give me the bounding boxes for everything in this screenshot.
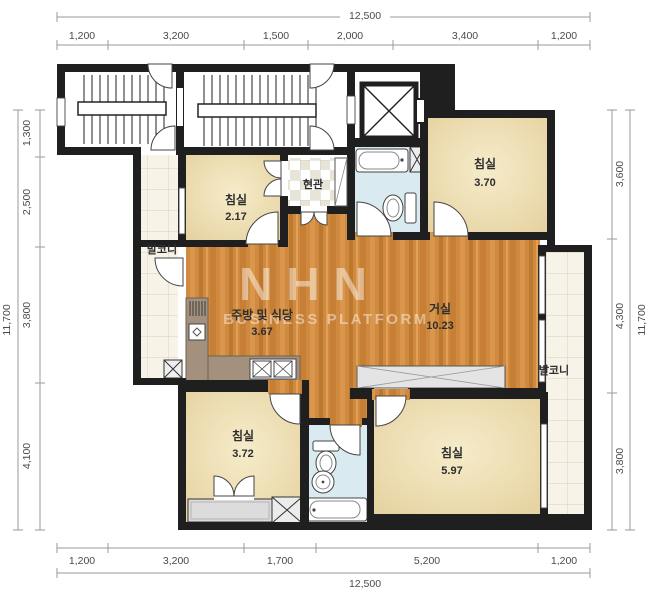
window-bedroom-top-left	[179, 188, 185, 234]
dim-top-seg-2: 1,500	[263, 30, 289, 42]
dim-bottom-seg-4: 1,200	[551, 555, 577, 567]
dim-bottom-total: 12,500	[349, 578, 381, 590]
dim-left-seg-0: 1,300	[21, 120, 33, 146]
living-room-label: 거실	[429, 301, 451, 316]
kitchen-sink	[189, 324, 205, 340]
elevator	[362, 84, 425, 138]
window-stairwell	[57, 98, 65, 126]
dimensions-top-text: 12,500 1,200 3,200 1,500 2,000 3,400 1,2…	[69, 10, 577, 42]
balcony-right-label: 발코니	[539, 363, 569, 377]
balcony-right-floor	[546, 252, 584, 514]
dim-left-seg-3: 4,100	[21, 443, 33, 469]
watermark-brand: NHN	[239, 258, 381, 310]
bedroom-top-left-area: 2.17	[225, 211, 246, 223]
storage-cabinet	[188, 499, 272, 522]
bedroom-top-left-label: 침실	[225, 192, 247, 207]
dimensions-left-text: 1,300 2,500 3,800 4,100 11,700	[1, 120, 33, 469]
stair-landing-rail	[198, 104, 316, 117]
dim-right-seg-0: 3,600	[614, 161, 626, 187]
dimensions-top	[57, 8, 590, 50]
floor-plan-page: NHN BUSINESS PLATFORM 침실 2.17 침실 3.70 현관…	[0, 0, 653, 591]
dim-bottom-seg-0: 1,200	[69, 555, 95, 567]
dim-left-seg-1: 2,500	[21, 189, 33, 215]
dim-top-seg-0: 1,200	[69, 30, 95, 42]
faucet-dot	[400, 158, 403, 161]
dim-top-seg-3: 2,000	[337, 30, 363, 42]
floor-plan-drawing: NHN BUSINESS PLATFORM 침실 2.17 침실 3.70 현관…	[0, 0, 653, 591]
window-bedroom-bottom-right	[541, 424, 547, 508]
bedroom-bottom-left-area: 3.72	[232, 448, 253, 460]
dim-left-total: 11,700	[1, 304, 13, 335]
dim-bottom-seg-2: 1,700	[267, 555, 293, 567]
window-lobby	[347, 96, 355, 124]
dim-top-total: 12,500	[349, 10, 381, 22]
living-room-area: 10.23	[426, 320, 454, 332]
kitchen-dining-area: 3.67	[251, 326, 272, 338]
shoe-cabinet	[335, 158, 347, 206]
stove-icon	[250, 359, 296, 379]
bedroom-bottom-right-label: 침실	[441, 445, 463, 460]
bedroom-top-right-area: 3.70	[474, 177, 495, 189]
dim-bottom-seg-3: 5,200	[414, 555, 440, 567]
dim-right-seg-1: 4,300	[614, 303, 626, 329]
window-living-1	[539, 256, 545, 314]
toilet-tank-top	[405, 193, 416, 223]
dim-top-seg-5: 1,200	[551, 30, 577, 42]
dim-bottom-seg-1: 3,200	[163, 555, 189, 567]
dim-right-seg-2: 3,800	[614, 448, 626, 474]
dim-top-seg-4: 3,400	[452, 30, 478, 42]
bedroom-bottom-right-area: 5.97	[441, 465, 462, 477]
dimensions-right-text: 3,600 4,300 3,800 11,700	[614, 161, 648, 474]
entrance-label: 현관	[303, 177, 323, 191]
bedroom-top-right-label: 침실	[474, 156, 496, 171]
living-room-wardrobe	[357, 366, 505, 388]
bedroom-bottom-left-label: 침실	[232, 428, 254, 443]
stair-landing-rail	[78, 102, 166, 115]
kitchen-dining-label: 주방 및 식당	[231, 307, 293, 322]
dim-top-seg-1: 3,200	[163, 30, 189, 42]
elevator-door-tab	[416, 99, 425, 123]
balcony-left-label: 발코니	[147, 242, 177, 256]
dim-left-seg-2: 3,800	[21, 302, 33, 328]
dim-right-total: 11,700	[636, 304, 648, 335]
dimensions-bottom	[57, 543, 590, 578]
